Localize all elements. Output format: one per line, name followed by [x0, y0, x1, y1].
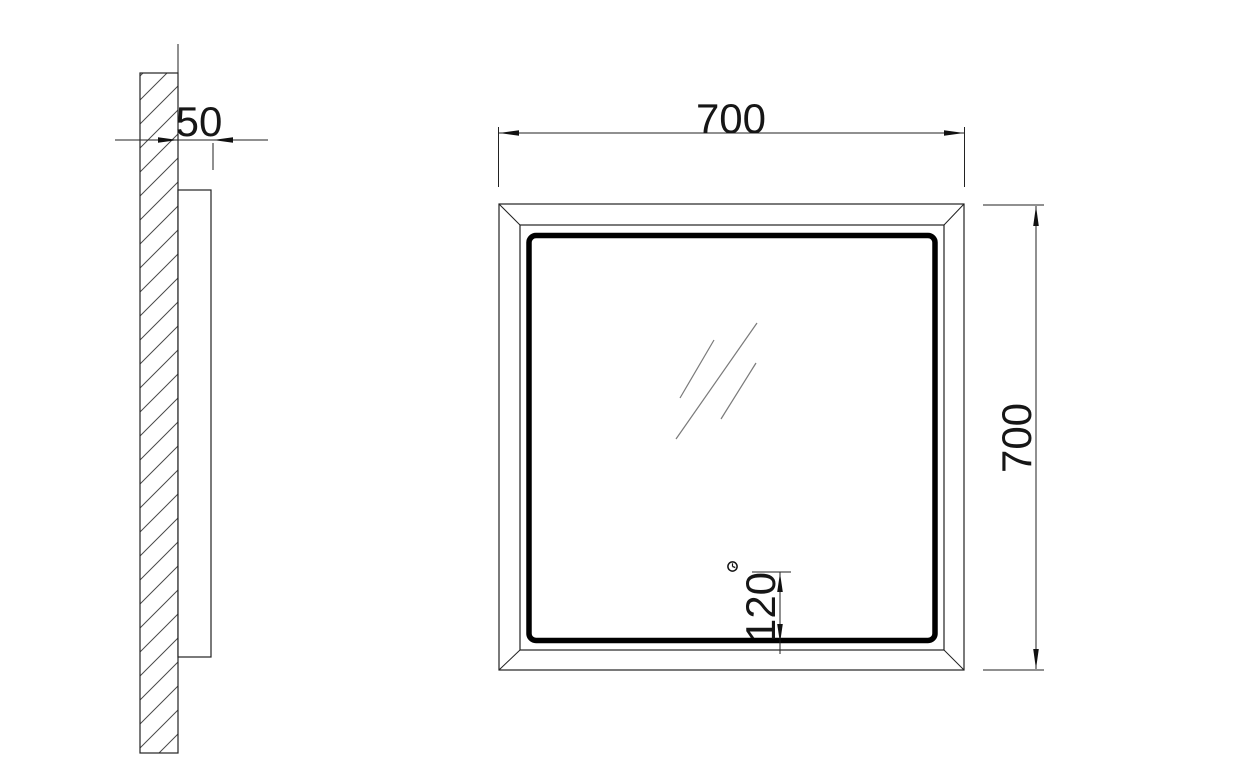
mirror-side-profile [178, 190, 211, 657]
width-arrow-left-icon [499, 130, 519, 136]
dimension-width-700: 700 [499, 95, 965, 187]
touch-sensor-icon [728, 562, 737, 571]
dimension-depth-50: 50 [115, 98, 268, 170]
wall-section-hatched [140, 73, 178, 753]
dimension-height-700: 700 [983, 205, 1044, 670]
depth-dimension-value: 50 [176, 98, 223, 145]
sensor-offset-dimension-value: 120 [737, 572, 784, 642]
drawing-surface: 50 [0, 0, 1253, 766]
mirror-inner-frame [520, 225, 944, 650]
height-arrow-up-icon [1033, 206, 1039, 226]
height-dimension-value: 700 [993, 403, 1040, 473]
width-arrow-right-icon [944, 130, 964, 136]
side-view: 50 [115, 44, 268, 753]
width-dimension-value: 700 [696, 95, 766, 142]
mirror-technical-drawing: 50 [0, 0, 1253, 766]
dimension-sensor-offset-120: 120 [737, 572, 791, 654]
height-arrow-down-icon [1033, 649, 1039, 669]
front-view: 700 700 120 [499, 95, 1045, 670]
